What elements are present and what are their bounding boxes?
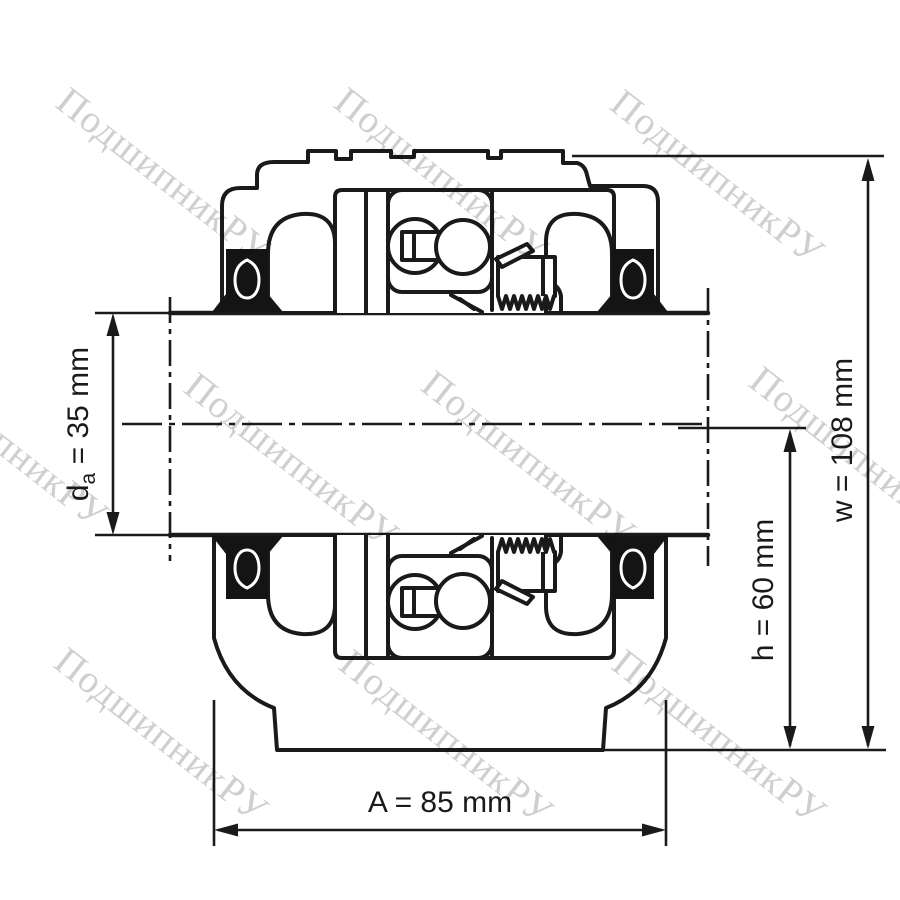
- roller-bottom-right: [436, 574, 490, 628]
- seal-vring-profile: [621, 260, 645, 298]
- arrowhead-down: [107, 512, 120, 535]
- arrowhead-up: [107, 313, 120, 336]
- watermark-text: ПодшипникРУ: [602, 81, 832, 274]
- technical-drawing-page: da = 35 mm A = 85 mm h = 60 mm w = 108 m…: [0, 0, 900, 900]
- watermark-text: ПодшипникРУ: [46, 639, 276, 832]
- arrowhead-down: [862, 726, 875, 749]
- seal-vring-profile: [621, 550, 645, 588]
- watermark-text: ПодшипникРУ: [48, 79, 278, 272]
- cavity-bottom-left: [268, 535, 335, 634]
- arrowhead-right: [642, 824, 666, 837]
- watermark-text: ПодшипникРУ: [604, 641, 834, 834]
- seal-vring-profile: [235, 550, 259, 588]
- arrowhead-up: [862, 158, 875, 181]
- cavity-top-left: [268, 214, 335, 313]
- watermark-text: ПодшипникРУ: [0, 344, 116, 537]
- arrowhead-down: [784, 726, 797, 749]
- dimension-label-h: h = 60 mm: [747, 519, 780, 662]
- bearing-housing-drawing: da = 35 mm A = 85 mm h = 60 mm w = 108 m…: [0, 0, 900, 900]
- arrowhead-left: [214, 824, 238, 837]
